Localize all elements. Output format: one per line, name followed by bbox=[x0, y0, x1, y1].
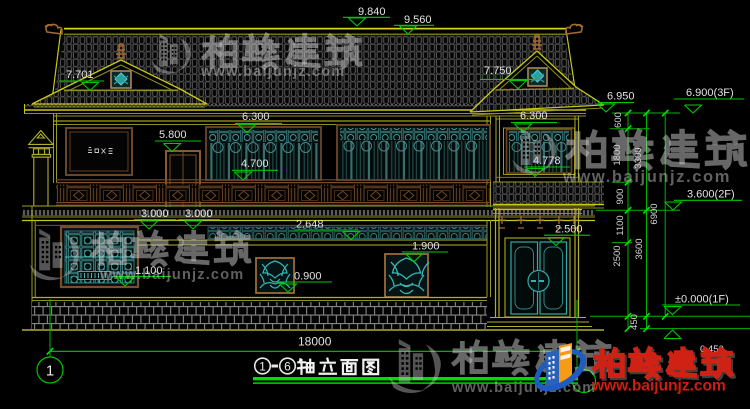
svg-text:1: 1 bbox=[259, 360, 266, 374]
svg-text:7.701: 7.701 bbox=[66, 69, 94, 81]
svg-text:450: 450 bbox=[629, 314, 640, 330]
svg-text:18000: 18000 bbox=[298, 335, 332, 349]
svg-text:600: 600 bbox=[613, 112, 624, 128]
svg-text:3600: 3600 bbox=[634, 238, 645, 259]
svg-text:www.baijunjz.com: www.baijunjz.com bbox=[200, 64, 345, 80]
svg-text:2.500: 2.500 bbox=[555, 224, 583, 236]
svg-text:7.750: 7.750 bbox=[484, 65, 512, 77]
svg-text:6.950: 6.950 bbox=[607, 91, 635, 103]
svg-text:6.900(3F): 6.900(3F) bbox=[686, 87, 734, 99]
svg-text:1100: 1100 bbox=[615, 215, 626, 235]
svg-text:900: 900 bbox=[615, 189, 626, 205]
svg-text:6: 6 bbox=[284, 360, 291, 374]
svg-text:9.560: 9.560 bbox=[404, 14, 432, 26]
svg-text:5.800: 5.800 bbox=[159, 129, 187, 141]
svg-text:6.300: 6.300 bbox=[520, 110, 548, 122]
svg-text:4.700: 4.700 bbox=[241, 158, 269, 170]
svg-text:www.baijunjz.com: www.baijunjz.com bbox=[591, 378, 726, 395]
svg-text:3.000: 3.000 bbox=[141, 208, 169, 220]
svg-text:www.baijunjz.com: www.baijunjz.com bbox=[99, 267, 244, 283]
svg-text:www.baijunjz.com: www.baijunjz.com bbox=[562, 168, 731, 186]
svg-text:www.baijunjz.com: www.baijunjz.com bbox=[451, 380, 596, 396]
svg-text:1.900: 1.900 bbox=[412, 241, 440, 253]
svg-text:9.840: 9.840 bbox=[358, 6, 386, 18]
svg-text:6.300: 6.300 bbox=[242, 111, 270, 123]
svg-text:0.900: 0.900 bbox=[294, 271, 322, 283]
svg-text:2.648: 2.648 bbox=[296, 219, 324, 231]
svg-text:2500: 2500 bbox=[612, 245, 623, 266]
svg-text:6900: 6900 bbox=[649, 203, 660, 224]
svg-text:±0.000(1F): ±0.000(1F) bbox=[675, 294, 729, 306]
svg-text:3.000: 3.000 bbox=[185, 208, 213, 220]
svg-text:3.600(2F): 3.600(2F) bbox=[687, 189, 735, 201]
svg-text:1: 1 bbox=[46, 363, 54, 380]
